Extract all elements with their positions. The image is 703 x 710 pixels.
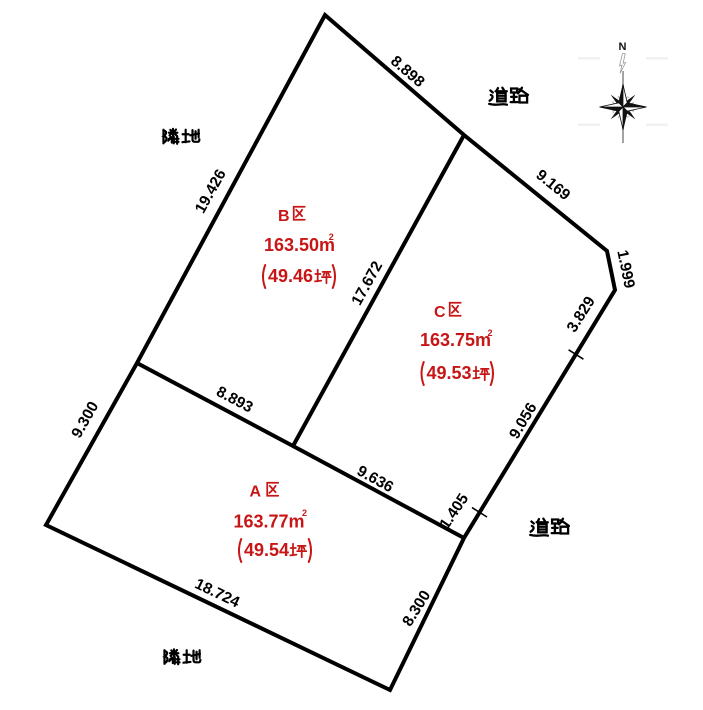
svg-text:49.46: 49.46: [268, 266, 313, 286]
svg-text:163.75m: 163.75m: [420, 330, 491, 350]
svg-text:N: N: [619, 41, 627, 53]
svg-text:2: 2: [302, 508, 307, 518]
svg-text:49.54: 49.54: [244, 540, 289, 560]
svg-text:B: B: [278, 208, 290, 225]
svg-text:A: A: [250, 484, 262, 501]
svg-text:2: 2: [488, 328, 493, 338]
svg-text:163.77m: 163.77m: [234, 512, 305, 532]
svg-text:49.53: 49.53: [427, 363, 472, 383]
svg-text:2: 2: [329, 232, 334, 242]
svg-text:163.50m: 163.50m: [264, 235, 335, 255]
svg-text:1.999: 1.999: [613, 248, 638, 290]
svg-text:C: C: [434, 304, 446, 321]
